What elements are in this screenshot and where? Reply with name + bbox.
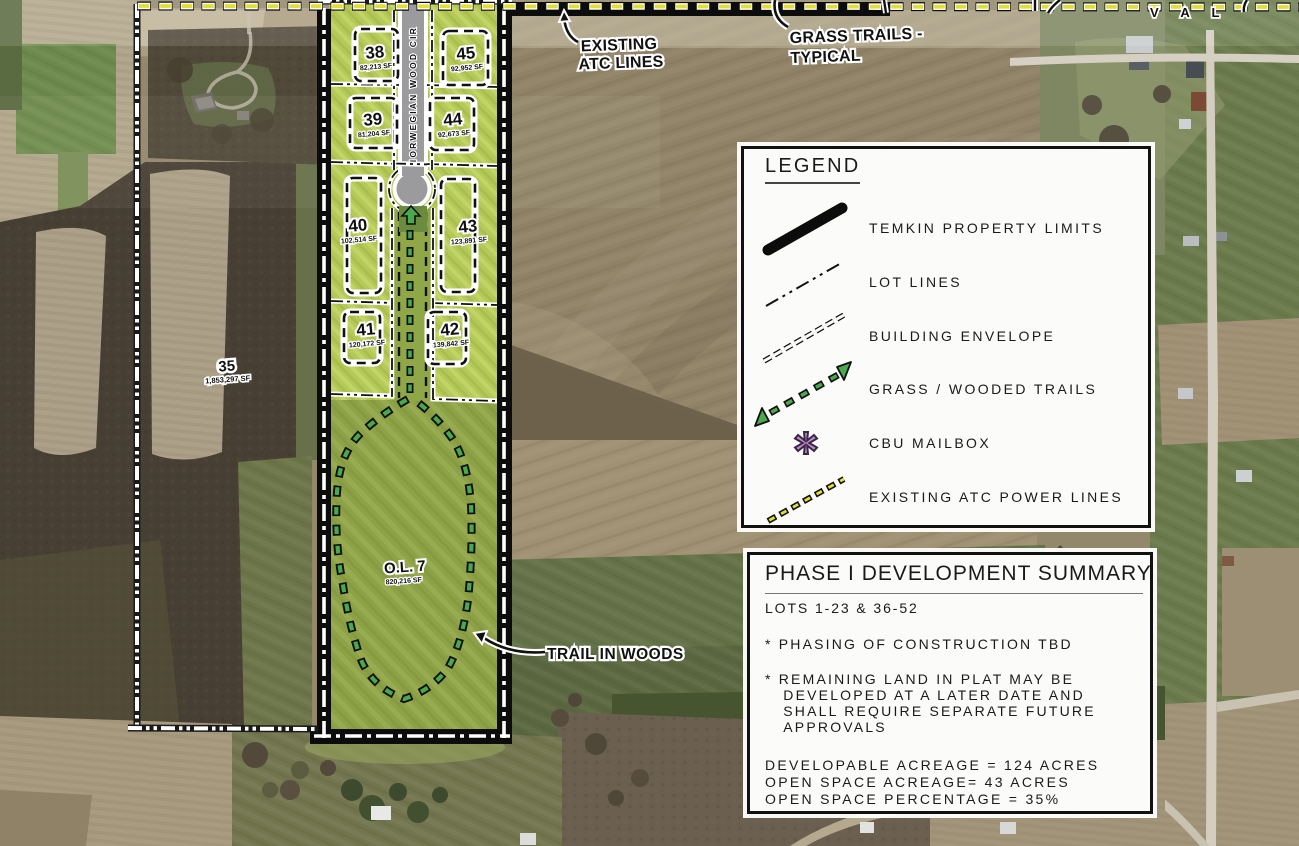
svg-text:42: 42 — [440, 319, 461, 340]
svg-text:44: 44 — [443, 109, 464, 130]
svg-text:GRASS TRAILS -: GRASS TRAILS - — [789, 25, 923, 47]
svg-text:O.L. 7: O.L. 7 — [383, 558, 426, 578]
svg-text:39: 39 — [363, 109, 384, 130]
svg-text:38: 38 — [365, 42, 386, 63]
svg-text:TRAIL IN WOODS: TRAIL IN WOODS — [547, 646, 684, 663]
svg-text:ATC LINES: ATC LINES — [578, 53, 664, 73]
svg-text:NORWEGIAN WOOD CIR: NORWEGIAN WOOD CIR — [408, 26, 418, 166]
svg-text:EXISTING: EXISTING — [581, 36, 658, 56]
svg-text:TYPICAL: TYPICAL — [790, 48, 861, 67]
svg-text:41: 41 — [356, 319, 377, 340]
svg-text:40: 40 — [348, 215, 369, 236]
svg-text:45: 45 — [456, 43, 477, 64]
svg-text:43: 43 — [458, 216, 479, 237]
svg-text:1,853,297 SF: 1,853,297 SF — [205, 373, 251, 385]
svg-text:V A L: V A L — [1150, 5, 1229, 20]
svg-text:35: 35 — [218, 357, 236, 375]
